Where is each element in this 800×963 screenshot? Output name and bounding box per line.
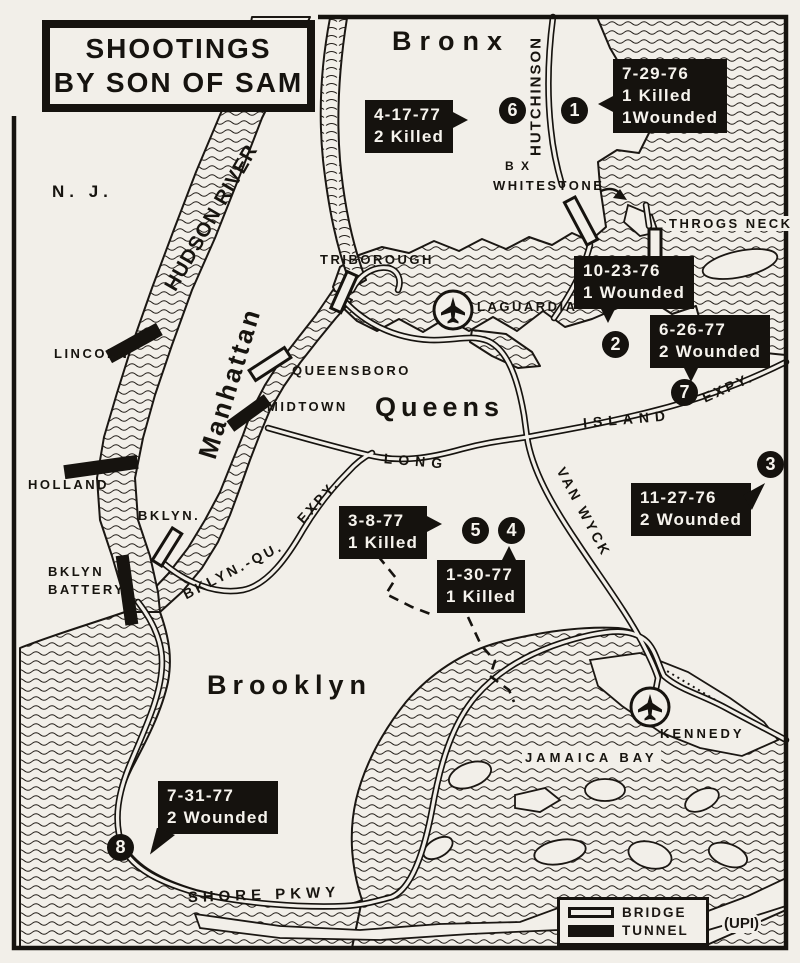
kennedy-airplane-icon <box>631 688 669 726</box>
marker-5: 5 <box>462 517 489 544</box>
event-line: 1 Killed <box>446 586 516 608</box>
legend-tunnel-row: TUNNEL <box>568 923 698 938</box>
event-box-1: 7-29-76 1 Killed 1Wounded <box>613 59 727 133</box>
label-bklyn: BKLYN. <box>138 508 200 523</box>
event-box-7: 6-26-77 2 Wounded <box>650 315 770 368</box>
event-line: 1Wounded <box>622 107 718 129</box>
marker-1: 1 <box>561 97 588 124</box>
label-bronx: Bronx <box>392 26 510 57</box>
event-date: 11-27-76 <box>640 487 742 509</box>
marker-6: 6 <box>499 97 526 124</box>
event-date: 3-8-77 <box>348 510 418 532</box>
event-line: 2 Wounded <box>167 807 269 829</box>
marker-2: 2 <box>602 331 629 358</box>
event-box-8: 7-31-77 2 Wounded <box>158 781 278 834</box>
label-bklyn-battery-1: BKLYN <box>48 564 104 579</box>
event-box-5: 3-8-77 1 Killed <box>339 506 427 559</box>
legend-tunnel-label: TUNNEL <box>622 923 689 938</box>
event-date: 1-30-77 <box>446 564 516 586</box>
label-queensboro: QUEENSBORO <box>292 363 411 378</box>
event-date: 7-29-76 <box>622 63 718 85</box>
pointer-icon <box>598 95 615 113</box>
laguardia-airplane-icon <box>434 291 472 329</box>
event-line: 1 Killed <box>348 532 418 554</box>
label-bklyn-battery-2: BATTERY <box>48 582 125 597</box>
son-of-sam-map: SHOOTINGS BY SON OF SAM N. J. Bronx Manh… <box>0 0 800 963</box>
pointer-icon <box>451 111 468 129</box>
event-line: 2 Wounded <box>659 341 761 363</box>
upi-credit: (UPI) <box>722 914 761 933</box>
map-title-line2: BY SON OF SAM <box>54 66 304 100</box>
label-triborough: TRIBOROUGH <box>320 252 434 267</box>
event-line: 2 Killed <box>374 126 444 148</box>
marker-8: 8 <box>107 834 134 861</box>
label-whitestone: WHITESTONE <box>493 178 604 193</box>
pointer-icon <box>600 307 616 323</box>
label-brooklyn: Brooklyn <box>207 670 372 701</box>
event-date: 7-31-77 <box>167 785 269 807</box>
legend-box: BRIDGE TUNNEL <box>557 897 709 946</box>
pointer-icon <box>501 546 517 562</box>
label-hutchinson: HUTCHINSON <box>528 36 545 156</box>
label-queens: Queens <box>375 392 504 423</box>
marker-7: 7 <box>671 379 698 406</box>
legend-bridge-label: BRIDGE <box>622 905 687 920</box>
marker-3: 3 <box>757 451 784 478</box>
label-bx: B X <box>505 159 531 173</box>
event-line: 1 Wounded <box>583 282 685 304</box>
label-nj: N. J. <box>52 182 113 202</box>
event-date: 6-26-77 <box>659 319 761 341</box>
event-box-3: 11-27-76 2 Wounded <box>631 483 751 536</box>
map-title-box: SHOOTINGS BY SON OF SAM <box>42 20 315 112</box>
event-line: 1 Killed <box>622 85 718 107</box>
event-date: 4-17-77 <box>374 104 444 126</box>
map-title-line1: SHOOTINGS <box>85 32 271 66</box>
label-kennedy: KENNEDY <box>660 726 745 741</box>
event-date: 10-23-76 <box>583 260 685 282</box>
event-box-4: 1-30-77 1 Killed <box>437 560 525 613</box>
label-laguardia: LAGUARDIA <box>477 299 578 314</box>
event-box-2: 10-23-76 1 Wounded <box>574 256 694 309</box>
event-line: 2 Wounded <box>640 509 742 531</box>
legend-bridge-row: BRIDGE <box>568 905 698 920</box>
label-jamaica-bay: JAMAICA BAY <box>522 750 661 765</box>
tunnel-symbol-icon <box>568 925 614 937</box>
bridge-symbol-icon <box>568 907 614 918</box>
label-lincoln: LINCOLN <box>54 346 129 361</box>
event-box-6: 4-17-77 2 Killed <box>365 100 453 153</box>
water-harlem-river <box>321 18 366 288</box>
label-holland: HOLLAND <box>28 477 109 492</box>
label-midtown: MIDTOWN <box>267 399 348 414</box>
label-throgs-neck: THROGS NECK <box>666 216 796 231</box>
pointer-icon <box>425 515 442 533</box>
marker-4: 4 <box>498 517 525 544</box>
